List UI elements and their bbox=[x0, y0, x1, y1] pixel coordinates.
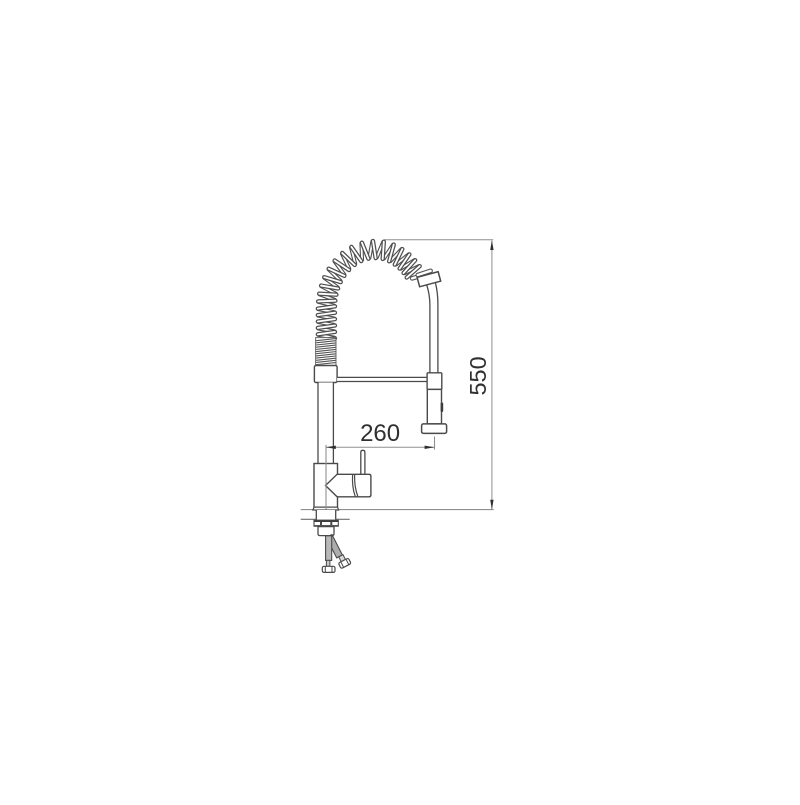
svg-text:260: 260 bbox=[360, 420, 400, 447]
svg-text:550: 550 bbox=[465, 356, 491, 395]
